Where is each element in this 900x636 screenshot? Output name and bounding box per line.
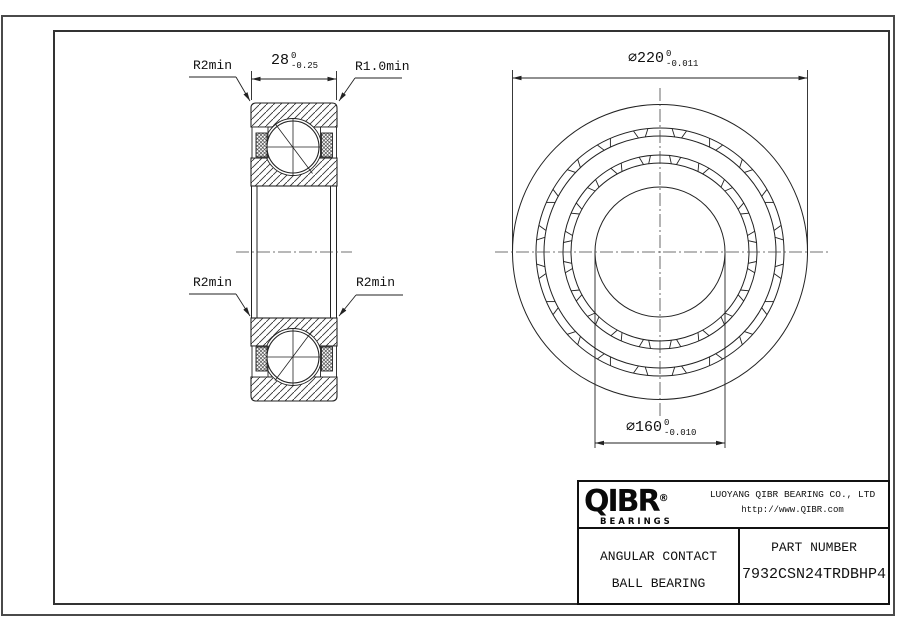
title-block: QIBR® BEARINGS LUOYANG QIBR BEARING CO.,… [577,480,890,605]
dim-outer-diameter-text: ⌀220 0 -0.011 [628,50,698,69]
part-number-value: 7932CSN24TRDBHP4 [740,566,888,583]
dim-outer-diameter-value: ⌀220 [628,50,664,67]
dim-width-graphics [252,71,337,100]
cage-bar-upper-left [256,133,267,157]
product-line1: ANGULAR CONTACT [579,543,738,570]
dim-outer-diameter-tolerance: 0 -0.011 [666,49,698,69]
company-name: LUOYANG QIBR BEARING CO., LTD [697,488,888,501]
title-block-header-row: QIBR® BEARINGS LUOYANG QIBR BEARING CO.,… [579,482,888,529]
radius-label-top-right: R1.0min [355,60,410,74]
title-block-body-row: ANGULAR CONTACT BALL BEARING PART NUMBER… [579,529,888,605]
dim-bore-diameter-text: ⌀160 0 -0.010 [626,419,696,438]
product-line2: BALL BEARING [579,570,738,597]
company-logo: QIBR® BEARINGS [579,482,697,527]
drawing-sheet: R2min R1.0min R2min R2min 28 0 -0.25 ⌀22… [0,0,900,636]
cage-bar-lower-right [322,347,333,371]
dim-width-value: 28 [271,52,289,69]
front-view-centerlines [495,88,829,416]
product-description-cell: ANGULAR CONTACT BALL BEARING [579,529,740,605]
front-view [495,88,829,416]
company-website: http://www.QIBR.com [697,504,888,516]
radius-label-bottom-right: R2min [356,276,395,290]
part-number-cell: PART NUMBER 7932CSN24TRDBHP4 [740,529,888,605]
radius-label-bottom-left: R2min [193,276,232,290]
company-info: LUOYANG QIBR BEARING CO., LTD http://www… [697,482,888,527]
dim-width-tolerance: 0 -0.25 [291,51,318,71]
part-number-label: PART NUMBER [740,540,888,555]
dim-width-text: 28 0 -0.25 [271,52,318,71]
cage-bar-lower-left [256,347,267,371]
registered-trademark-icon: ® [659,493,669,504]
logo-wordmark: QIBR® [584,485,697,516]
cage-bar-upper-right [322,133,333,157]
dim-bore-diameter-tolerance: 0 -0.010 [664,418,696,438]
logo-subtext: BEARINGS [600,517,697,527]
dim-bore-diameter-value: ⌀160 [626,419,662,436]
section-view [236,103,352,401]
radius-label-top-left: R2min [193,59,232,73]
